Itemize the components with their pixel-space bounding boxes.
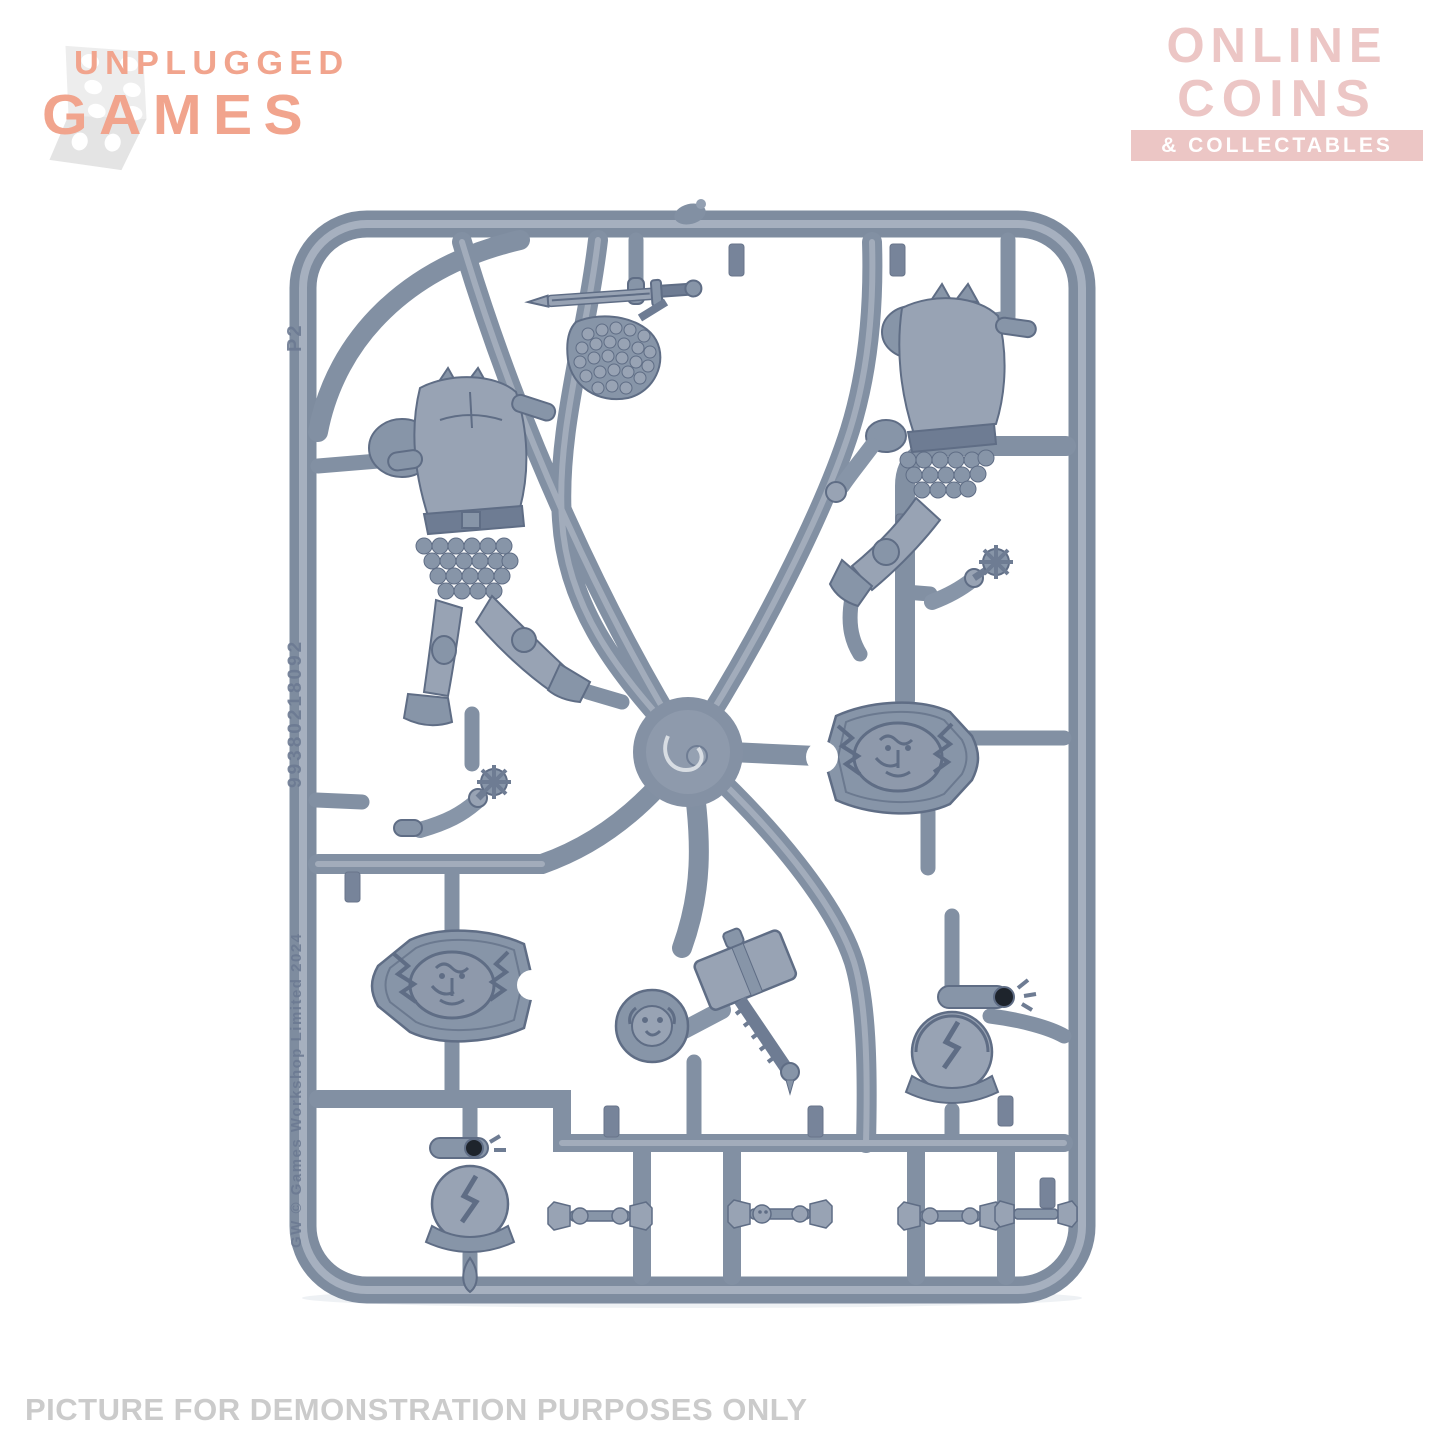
unplugged-logo-line1: UNPLUGGED: [74, 44, 349, 82]
demo-disclaimer-caption: PICTURE FOR DEMONSTRATION PURPOSES ONLY: [25, 1392, 808, 1428]
molded-gate-label: P2: [284, 324, 306, 352]
part-helmet-right: [906, 980, 1036, 1103]
online-coins-logo: ONLINE COINS & COLLECTABLES: [1131, 22, 1423, 161]
molded-part-number: 99380218092: [285, 639, 306, 788]
sprue-hub: [633, 697, 743, 807]
product-image: P2 99380218092 GW © Games Workshop Limit…: [0, 0, 1445, 1445]
part-totem-1: [548, 1202, 652, 1230]
part-shield-right: [806, 703, 978, 814]
unplugged-games-logo: UNPLUGGED GAMES: [22, 16, 362, 186]
online-logo-banner: & COLLECTABLES: [1131, 130, 1423, 161]
part-hammer-arm: [616, 914, 799, 1094]
sprue-illustration: P2 99380218092 GW © Games Workshop Limit…: [0, 0, 1445, 1445]
part-totem-4: [995, 1201, 1077, 1227]
unplugged-logo-line2: GAMES: [42, 82, 314, 148]
part-mace-right: [932, 545, 1013, 602]
part-totem-3: [898, 1202, 1002, 1230]
molded-copyright: GW © Games Workshop Limited 2024: [288, 932, 305, 1248]
part-shield-left: [372, 931, 547, 1042]
online-logo-line1: ONLINE: [1131, 22, 1423, 71]
sprue-photo: P2 99380218092 GW © Games Workshop Limit…: [0, 0, 1445, 1445]
part-mace-left: [394, 765, 511, 836]
part-chainmail-sword: [527, 277, 702, 399]
online-logo-line2: COINS: [1131, 73, 1423, 125]
part-totem-2: [728, 1200, 832, 1228]
part-helmet-left: [426, 1136, 514, 1292]
